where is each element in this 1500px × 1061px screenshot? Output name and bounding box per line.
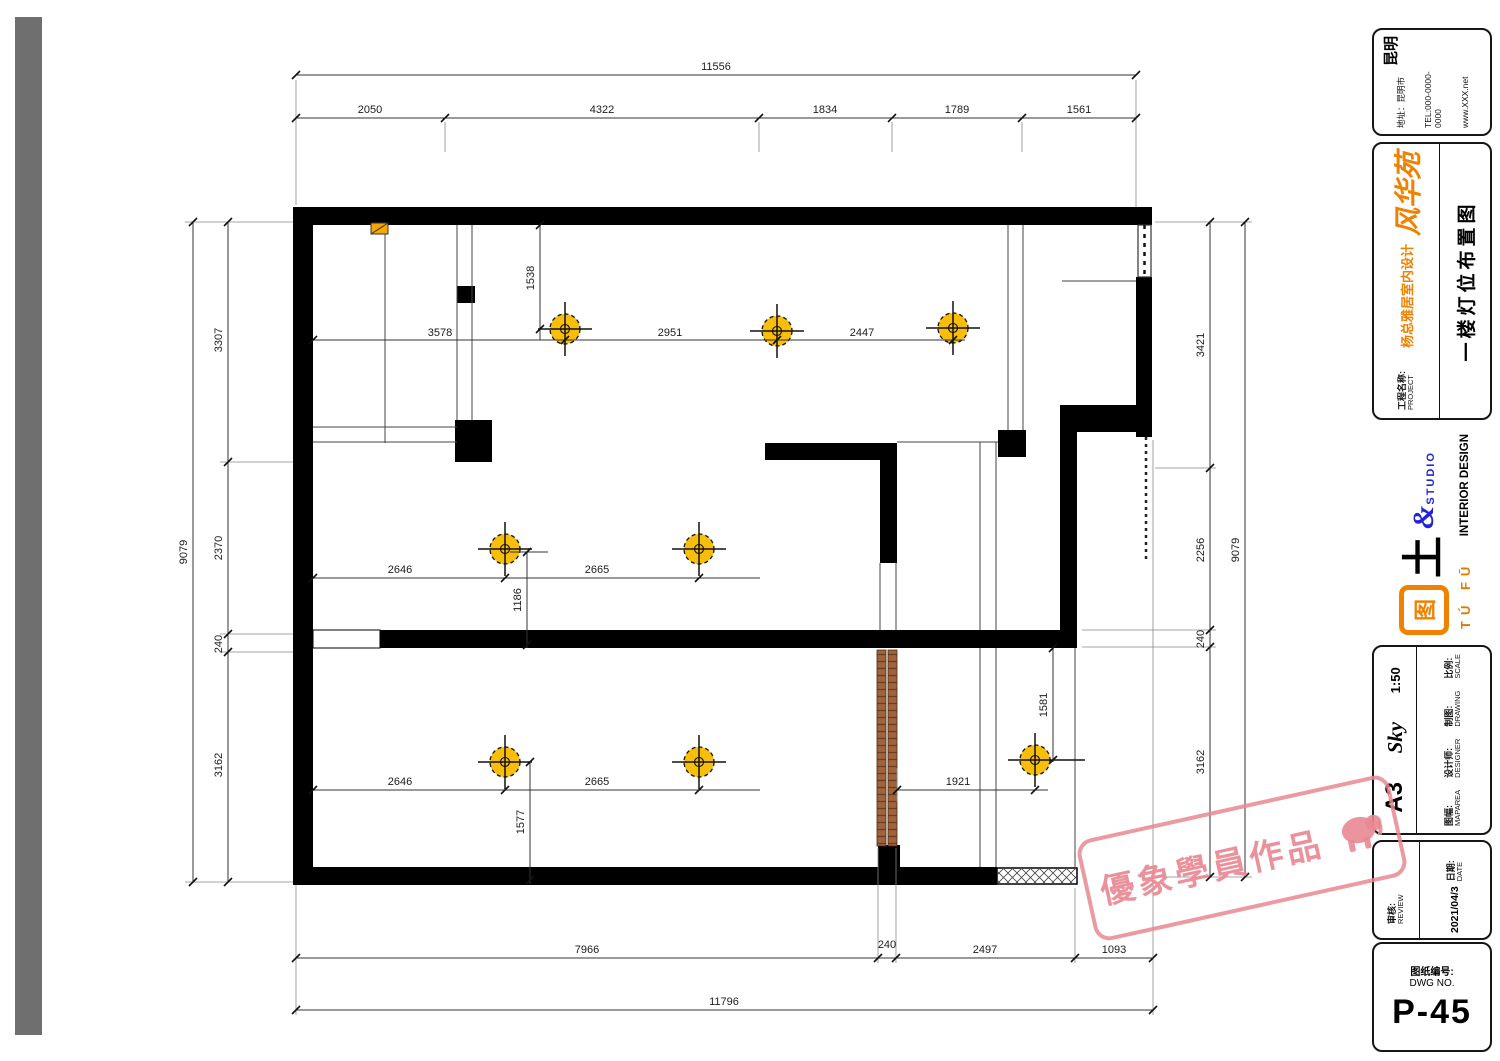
dim-label: 1789 xyxy=(945,104,969,116)
logo-pinyin: TÚ FŪ xyxy=(1458,561,1473,629)
company-address: 地址：昆明市 xyxy=(1395,66,1407,128)
light-symbol xyxy=(538,302,592,356)
light-symbol xyxy=(1008,733,1085,787)
door-opening xyxy=(313,630,380,648)
dim-label: 2256 xyxy=(1195,538,1207,562)
drawing-title: 一楼灯位布置图 xyxy=(1452,201,1479,362)
company-web: www.XXX.net xyxy=(1460,66,1470,128)
dim-label: 3162 xyxy=(1195,750,1207,774)
project-label: 工程名称: PROJECT xyxy=(1397,371,1416,410)
dim-label: 240 xyxy=(213,635,225,653)
dim-label: 3578 xyxy=(428,327,452,339)
logo-fu: 土 xyxy=(1403,536,1445,578)
dim-label: 7966 xyxy=(575,944,599,956)
window-top-right xyxy=(1138,225,1151,277)
dim-label: 2646 xyxy=(388,564,412,576)
dwg-no-label-cn: 图纸编号: xyxy=(1410,963,1453,978)
dim-label: 1186 xyxy=(512,588,524,612)
dim-label: 1834 xyxy=(813,104,837,116)
light-symbol xyxy=(750,304,804,358)
dim-label: 11556 xyxy=(701,61,731,73)
logo-mark-icon: 图 xyxy=(1399,585,1449,635)
dim-label: 2951 xyxy=(658,327,682,339)
dim-label: 9079 xyxy=(1230,538,1242,562)
wood-sliding-door xyxy=(877,650,897,846)
light-symbol xyxy=(672,735,726,789)
logo-tagline: INTERIOR DESIGN xyxy=(1459,434,1471,536)
dim-label: 2497 xyxy=(973,944,997,956)
dim-label: 2665 xyxy=(585,776,609,788)
dim-label: 240 xyxy=(1195,630,1207,648)
dim-label: 2050 xyxy=(358,104,382,116)
logo-ampersand-icon: & xyxy=(1407,506,1441,529)
dim-label: 1538 xyxy=(525,266,537,290)
dim-label: 2665 xyxy=(585,564,609,576)
company-card: 地址：昆明市 TEL:000-0000-0000 www.XXX.net 昆明 xyxy=(1372,28,1492,136)
review-label: 审核: REVIEW xyxy=(1387,894,1406,924)
studio-logo: 图 土 & STUDIO TÚ FŪ INTERIOR DESIGN xyxy=(1372,430,1492,635)
switch-symbol xyxy=(371,223,388,234)
dim-label: 3307 xyxy=(213,328,225,352)
dwg-no-label-en: DWG NO. xyxy=(1410,978,1455,989)
company-tel: TEL:000-0000-0000 xyxy=(1423,66,1443,128)
project-box: 工程名称: PROJECT 杨总雅居室内设计 风华苑 一楼灯位布置图 xyxy=(1372,142,1492,420)
dim-label: 1577 xyxy=(515,810,527,834)
date-label: 日期: DATE xyxy=(1446,860,1465,881)
dim-label: 1581 xyxy=(1038,693,1050,717)
light-symbol xyxy=(478,735,532,789)
size-label: 图幅: MAPAREA xyxy=(1444,790,1463,826)
light-symbol xyxy=(926,301,980,355)
dim-label: 3162 xyxy=(213,753,225,777)
dwg-no-box: 图纸编号: DWG NO. P-45 xyxy=(1372,942,1492,1052)
project-subtitle: 杨总雅居室内设计 xyxy=(1397,244,1416,348)
elephant-icon xyxy=(1328,805,1388,859)
dim-label: 2447 xyxy=(850,327,874,339)
dim-label: 9079 xyxy=(178,540,190,564)
light-symbol xyxy=(672,522,726,576)
logo-studio: STUDIO xyxy=(1425,451,1437,505)
window-hatched xyxy=(997,868,1077,884)
dim-label: 240 xyxy=(878,939,896,951)
company-region: 昆明 xyxy=(1378,32,1401,66)
drawing-label: 制图: DRAWING xyxy=(1444,691,1463,727)
ceiling-lights xyxy=(478,301,1085,789)
watermark-text: 優象學員作品 xyxy=(1095,816,1328,913)
light-symbol xyxy=(478,522,532,576)
dim-label: 1561 xyxy=(1067,104,1091,116)
designer-value: Sky xyxy=(1383,722,1408,754)
dim-label: 1921 xyxy=(946,776,970,788)
date-value: 2021/04/3 xyxy=(1449,886,1461,933)
dim-label: 2646 xyxy=(388,776,412,788)
construction-lines xyxy=(313,225,1136,867)
dim-label: 2370 xyxy=(213,536,225,560)
dim-label: 4322 xyxy=(590,104,614,116)
brand-calligraphy: 风华苑 xyxy=(1387,152,1427,236)
scale-value: 1:50 xyxy=(1388,667,1403,693)
designer-label: 设计师: DESIGNER xyxy=(1444,739,1463,778)
dim-label: 11796 xyxy=(709,996,739,1008)
dwg-no-value: P-45 xyxy=(1392,993,1472,1032)
dim-label: 1093 xyxy=(1102,944,1126,956)
dim-label: 3421 xyxy=(1195,333,1207,357)
scale-label: 比例: SCALE xyxy=(1444,654,1463,679)
